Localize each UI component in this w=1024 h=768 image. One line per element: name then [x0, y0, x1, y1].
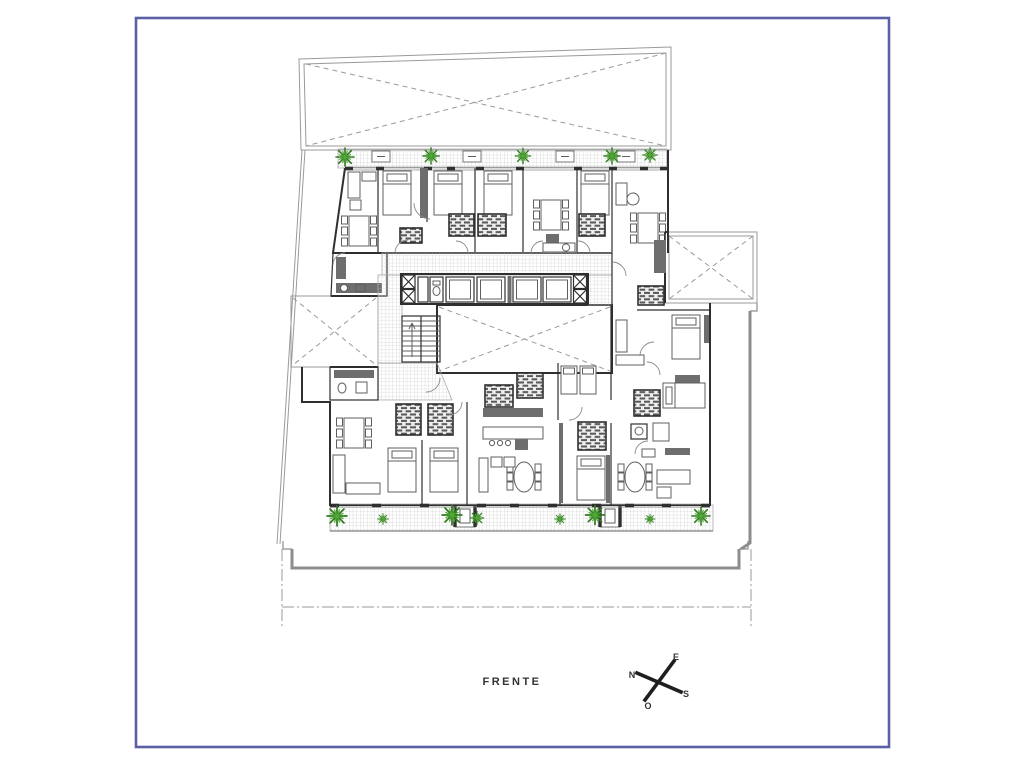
bed	[484, 171, 512, 215]
duct	[418, 277, 428, 302]
bed	[383, 171, 411, 215]
sofa	[657, 470, 690, 484]
compass-west-label: O	[644, 701, 651, 711]
bathroom	[578, 422, 606, 450]
bed	[577, 456, 605, 500]
plant-icon	[586, 506, 605, 525]
sofa	[657, 487, 671, 498]
kitchen-counter	[543, 243, 575, 252]
sideboard	[546, 234, 559, 243]
sofa	[616, 320, 627, 352]
plant-icon	[423, 148, 439, 164]
plant-icon	[555, 514, 566, 525]
sofa	[616, 355, 644, 365]
kitchen-counter	[483, 408, 543, 417]
plant-icon	[604, 148, 620, 164]
bathroom	[634, 390, 660, 416]
wardrobe	[704, 315, 709, 343]
wardrobe	[420, 168, 428, 218]
staircase	[402, 316, 440, 362]
bed	[561, 366, 577, 394]
bed	[580, 366, 596, 394]
planter-box	[463, 151, 481, 162]
kitchen-sink	[642, 449, 655, 457]
wc-room	[631, 424, 647, 439]
compass-rose: E N S O	[629, 652, 689, 711]
corridor	[382, 253, 612, 275]
balcony-door-threshold	[600, 505, 620, 527]
dining-table	[631, 213, 666, 243]
plant-icon	[336, 148, 354, 166]
kitchen-island	[483, 427, 543, 439]
elevator-car	[513, 277, 541, 302]
core-wc	[430, 277, 443, 302]
armchair	[350, 200, 361, 210]
roof-terrace-right	[665, 232, 757, 303]
washer	[356, 382, 367, 393]
side-table	[627, 193, 639, 205]
elevator-shaft	[574, 275, 587, 289]
sofa	[616, 183, 627, 205]
sofa	[348, 172, 360, 198]
sofa	[479, 458, 488, 492]
kitchen-sink	[515, 439, 528, 450]
stair-direction-arrow	[409, 323, 415, 357]
plant-icon	[378, 514, 389, 525]
bed	[581, 171, 609, 215]
compass-south-label: S	[683, 689, 689, 699]
bathroom	[396, 404, 421, 435]
bed	[430, 448, 458, 492]
bed	[434, 171, 462, 215]
planter-box	[556, 151, 574, 162]
floorplan-drawing: FRENTE E N S O	[0, 0, 1024, 768]
bed	[388, 448, 416, 492]
elevator-car	[477, 277, 505, 302]
elevator-car	[446, 277, 474, 302]
bathroom	[485, 385, 513, 407]
plant-icon	[645, 514, 655, 524]
kitchen-counter	[653, 423, 669, 441]
kitchen-counter	[654, 240, 666, 273]
courtyard	[437, 305, 612, 373]
dining-table	[342, 216, 377, 246]
elevator-shaft	[402, 290, 415, 304]
roof-terrace-top	[299, 47, 671, 150]
bathroom	[517, 373, 543, 398]
corridor	[378, 275, 402, 363]
kitchen-sink	[341, 285, 348, 292]
plant-icon	[327, 506, 347, 526]
drawing-page: FRENTE E N S O	[0, 0, 1024, 768]
balcony-bottom	[330, 505, 713, 531]
fridge	[336, 257, 346, 279]
plant-icon	[470, 511, 484, 525]
bed	[663, 383, 705, 408]
bathroom	[579, 214, 605, 236]
bathroom	[449, 214, 474, 236]
compass-north-label: N	[629, 670, 636, 680]
bathroom	[638, 286, 664, 305]
sofa	[346, 483, 380, 494]
bed	[672, 315, 700, 359]
dining-table	[618, 462, 652, 492]
sofa	[333, 455, 345, 493]
kitchen-counter	[665, 448, 690, 455]
elevator-car	[543, 277, 571, 302]
laundry-room	[330, 367, 378, 400]
dining-table	[534, 200, 569, 230]
terrace-left	[291, 296, 378, 367]
elevator-shaft	[574, 290, 587, 304]
front-label: FRENTE	[483, 676, 542, 688]
plant-icon	[643, 148, 657, 162]
lower-apartments	[302, 303, 710, 507]
elevator-shaft	[402, 275, 415, 289]
plant-icon	[515, 148, 530, 163]
elevator-bank	[401, 274, 588, 304]
bathroom	[478, 214, 506, 236]
dining-table	[337, 418, 372, 448]
corridor	[378, 363, 452, 400]
sofa	[362, 172, 376, 181]
planter-box	[372, 151, 390, 162]
armchair	[491, 457, 502, 467]
plant-icon	[442, 505, 462, 525]
corridor	[588, 275, 612, 305]
bathroom	[428, 404, 453, 435]
plant-icon	[692, 507, 710, 525]
balcony-top	[338, 149, 667, 168]
armchair	[504, 457, 515, 467]
page-border	[136, 18, 889, 747]
compass-east-label: E	[673, 652, 679, 662]
